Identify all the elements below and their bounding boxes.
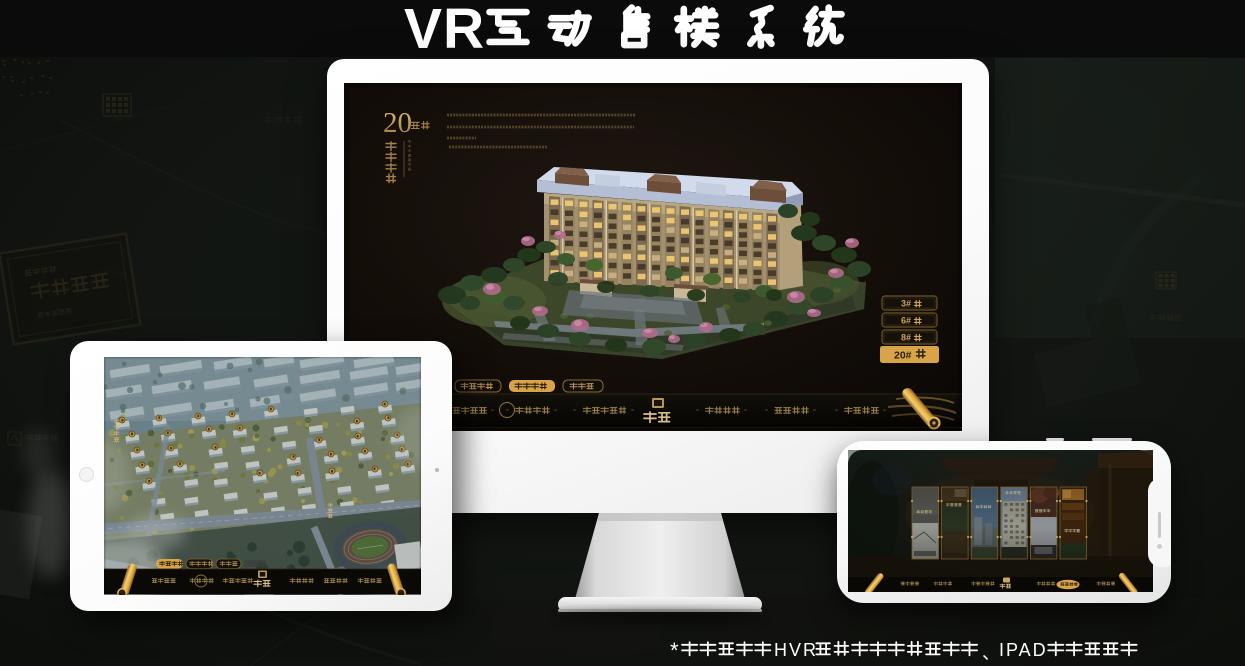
svg-text:20#: 20# <box>894 350 912 362</box>
svg-text:20: 20 <box>383 107 412 139</box>
svg-text:*: * <box>670 638 679 663</box>
svg-text:、: 、 <box>982 643 1000 663</box>
svg-text:8#: 8# <box>901 333 911 343</box>
svg-text:3#: 3# <box>901 299 911 309</box>
svg-text:HVR: HVR <box>774 640 818 660</box>
svg-text:IPAD: IPAD <box>999 640 1048 660</box>
svg-text:VR: VR <box>404 0 485 58</box>
svg-text:6#: 6# <box>901 316 911 326</box>
